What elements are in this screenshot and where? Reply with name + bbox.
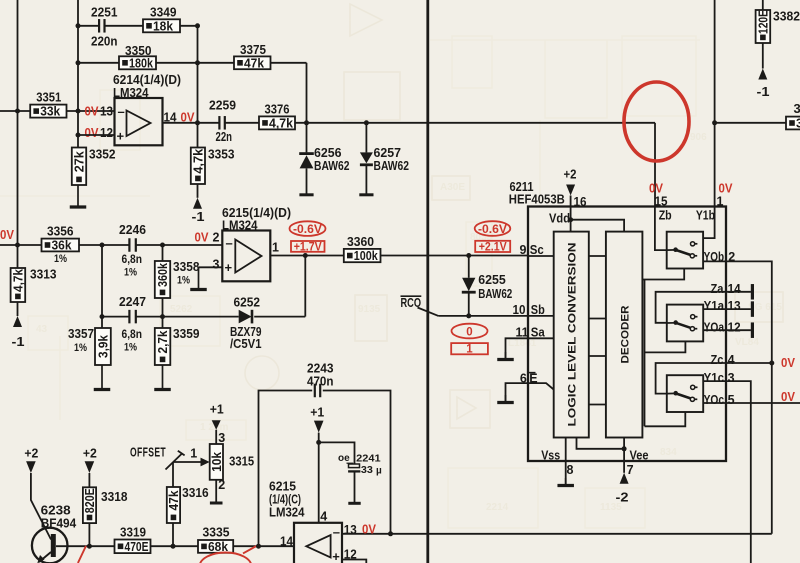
svg-text:6: 6: [520, 371, 527, 385]
svg-text:470n: 470n: [307, 374, 334, 389]
svg-text:Zc: Zc: [711, 352, 724, 367]
svg-text:+1: +1: [310, 406, 324, 420]
svg-text:0V: 0V: [362, 522, 377, 536]
svg-text:2: 2: [218, 478, 225, 492]
svg-text:Vdd: Vdd: [549, 211, 570, 226]
svg-text:3357: 3357: [68, 326, 94, 341]
svg-text:6252: 6252: [234, 295, 261, 310]
svg-text:22n: 22n: [216, 129, 233, 144]
svg-text:2251: 2251: [91, 5, 118, 20]
svg-text:BAW62: BAW62: [314, 158, 350, 173]
svg-text:1: 1: [466, 344, 473, 356]
svg-text:470E: 470E: [125, 540, 149, 554]
svg-text:Y1a: Y1a: [704, 298, 725, 313]
svg-text:/C5V1: /C5V1: [230, 336, 262, 351]
svg-text:oe: oe: [338, 453, 350, 464]
svg-text:43: 43: [36, 324, 48, 335]
svg-text:1: 1: [190, 447, 197, 461]
svg-text:3: 3: [218, 431, 225, 445]
svg-text:13: 13: [100, 104, 113, 118]
svg-text:4: 4: [728, 353, 735, 367]
svg-text:100k: 100k: [354, 249, 378, 263]
svg-text:–: –: [333, 524, 340, 539]
svg-text:3358: 3358: [173, 259, 200, 274]
svg-text:3318: 3318: [101, 489, 128, 504]
svg-text:0V: 0V: [85, 104, 100, 118]
svg-text:L1841: L1841: [508, 338, 537, 349]
svg-text:+: +: [332, 549, 340, 563]
svg-text:10k: 10k: [210, 452, 224, 472]
svg-text:–: –: [226, 236, 233, 251]
svg-text:0V: 0V: [0, 228, 15, 242]
svg-text:3335: 3335: [203, 525, 230, 540]
svg-text:1%: 1%: [124, 267, 137, 279]
svg-text:-2: -2: [616, 491, 629, 505]
svg-text:3: 3: [796, 117, 800, 131]
svg-text:3349: 3349: [150, 5, 177, 20]
svg-text:14: 14: [728, 282, 741, 296]
svg-text:Sb: Sb: [531, 302, 545, 317]
svg-text:6,8n: 6,8n: [122, 327, 143, 341]
svg-text:27k: 27k: [72, 151, 86, 172]
svg-text:3350: 3350: [125, 43, 152, 58]
svg-text:YOa: YOa: [704, 319, 725, 334]
svg-text:3313: 3313: [30, 266, 57, 281]
svg-text:DECODER: DECODER: [619, 305, 631, 363]
svg-text:36k: 36k: [52, 239, 72, 253]
svg-text:4,7k: 4,7k: [11, 269, 25, 292]
svg-text:33: 33: [794, 101, 800, 116]
svg-text:+1.7V: +1.7V: [294, 241, 322, 253]
svg-text:10: 10: [513, 303, 526, 317]
svg-text:220n: 220n: [91, 33, 118, 48]
svg-text:834: 834: [660, 447, 677, 458]
svg-text:3360: 3360: [347, 234, 374, 249]
svg-text:A30E: A30E: [440, 182, 465, 193]
svg-text:+2: +2: [83, 447, 97, 461]
svg-text:12: 12: [100, 126, 113, 140]
svg-text:HEF4053B: HEF4053B: [509, 191, 565, 206]
svg-text:9: 9: [520, 243, 527, 257]
svg-text:47k: 47k: [244, 56, 264, 70]
svg-text:3382: 3382: [773, 9, 800, 24]
svg-text:LM324: LM324: [269, 504, 305, 519]
svg-text:1%: 1%: [54, 253, 67, 265]
svg-text:+1: +1: [210, 403, 224, 417]
svg-text:LOGIC LEVEL CONVERSION: LOGIC LEVEL CONVERSION: [566, 242, 578, 426]
svg-text:3351: 3351: [36, 90, 61, 105]
svg-text:3353: 3353: [208, 146, 235, 161]
svg-text:Vee: Vee: [630, 447, 649, 462]
svg-text:3: 3: [728, 371, 735, 385]
svg-text:6255: 6255: [478, 272, 506, 287]
svg-text:VL84: VL84: [735, 337, 759, 348]
svg-text:3,9k: 3,9k: [96, 335, 110, 358]
svg-text:2: 2: [728, 250, 735, 264]
svg-text:-1: -1: [192, 210, 205, 224]
svg-text:2247: 2247: [119, 294, 146, 309]
svg-text:5262: 5262: [170, 304, 193, 315]
svg-text:820E: 820E: [83, 488, 97, 513]
svg-text:14: 14: [280, 534, 293, 548]
svg-text:906: 906: [690, 132, 707, 143]
svg-text:16: 16: [574, 195, 587, 209]
svg-text:13: 13: [728, 299, 741, 313]
svg-text:+2.1V: +2.1V: [479, 241, 507, 253]
svg-text:12: 12: [728, 320, 741, 334]
svg-text:YOc: YOc: [704, 392, 725, 407]
svg-text:1: 1: [272, 241, 279, 255]
svg-text:33k: 33k: [40, 105, 60, 119]
svg-text:1%: 1%: [124, 342, 137, 354]
svg-text:µ: µ: [376, 465, 382, 476]
svg-text:33: 33: [361, 464, 373, 476]
svg-text:Zb: Zb: [659, 207, 672, 222]
svg-text:-0.6V: -0.6V: [293, 224, 322, 236]
svg-text:3315: 3315: [229, 453, 254, 468]
svg-text:BAW62: BAW62: [478, 286, 512, 301]
svg-text:OFFSET: OFFSET: [130, 445, 166, 459]
svg-text:8: 8: [567, 463, 574, 477]
svg-text:3376: 3376: [265, 102, 290, 117]
svg-text:–: –: [118, 104, 125, 119]
svg-text:Sc: Sc: [530, 242, 544, 257]
svg-text:47k: 47k: [167, 490, 181, 510]
svg-text:120E: 120E: [756, 10, 770, 34]
svg-text:3: 3: [213, 258, 220, 272]
svg-text:18k: 18k: [153, 19, 173, 33]
svg-text:0V: 0V: [195, 231, 210, 245]
svg-text:-1: -1: [12, 335, 25, 349]
svg-text:4: 4: [320, 509, 327, 523]
svg-text:4,7k: 4,7k: [269, 117, 293, 131]
svg-text:3352: 3352: [89, 146, 116, 161]
svg-text:11: 11: [516, 326, 529, 340]
svg-text:2246: 2246: [119, 222, 146, 237]
svg-text:3356: 3356: [47, 224, 74, 239]
svg-text:2,7k: 2,7k: [156, 330, 170, 353]
svg-text:4,7k: 4,7k: [191, 149, 205, 174]
svg-text:5: 5: [728, 393, 735, 407]
svg-text:-1: -1: [757, 85, 770, 99]
svg-text:15: 15: [655, 194, 668, 208]
svg-text:Y1c: Y1c: [704, 370, 725, 385]
svg-text:3375: 3375: [240, 42, 266, 57]
svg-text:Sa: Sa: [531, 325, 546, 340]
svg-text:+: +: [117, 129, 125, 144]
svg-text:3359: 3359: [173, 326, 200, 341]
svg-text:2259: 2259: [209, 98, 236, 113]
svg-text:-0.6V: -0.6V: [478, 224, 507, 236]
svg-text:3316: 3316: [182, 485, 209, 500]
svg-text:YOb: YOb: [704, 249, 725, 264]
svg-text:13: 13: [344, 523, 357, 537]
svg-text:3319: 3319: [120, 525, 146, 540]
svg-text:Za: Za: [711, 281, 725, 296]
svg-text:2: 2: [213, 231, 220, 245]
svg-text:0V: 0V: [781, 390, 796, 404]
svg-text:Vss: Vss: [541, 447, 560, 462]
svg-text:9135: 9135: [358, 304, 381, 315]
svg-text:1%: 1%: [177, 275, 190, 287]
svg-text:180k: 180k: [129, 56, 153, 70]
svg-text:BAW62: BAW62: [374, 158, 410, 173]
svg-text:7: 7: [627, 463, 634, 477]
svg-text:2214: 2214: [486, 502, 509, 513]
svg-text:+: +: [225, 260, 233, 275]
svg-text:360k: 360k: [156, 263, 170, 287]
svg-text:Y1b: Y1b: [696, 207, 715, 222]
svg-text:+2: +2: [564, 168, 577, 182]
svg-text:+2: +2: [24, 447, 38, 461]
svg-text:1%: 1%: [74, 342, 87, 354]
svg-text:0V: 0V: [85, 126, 100, 140]
svg-text:0V: 0V: [781, 356, 796, 370]
svg-text:1: 1: [717, 194, 724, 208]
svg-text:6,8n: 6,8n: [122, 252, 143, 266]
svg-text:0: 0: [466, 326, 472, 338]
